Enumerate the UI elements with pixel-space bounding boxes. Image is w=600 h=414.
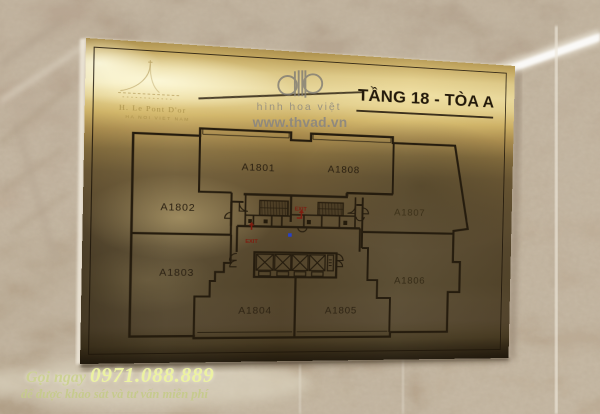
svg-text:www.thvad.vn: www.thvad.vn [252, 115, 348, 130]
svg-text:hình hoa việt: hình hoa việt [257, 101, 342, 113]
